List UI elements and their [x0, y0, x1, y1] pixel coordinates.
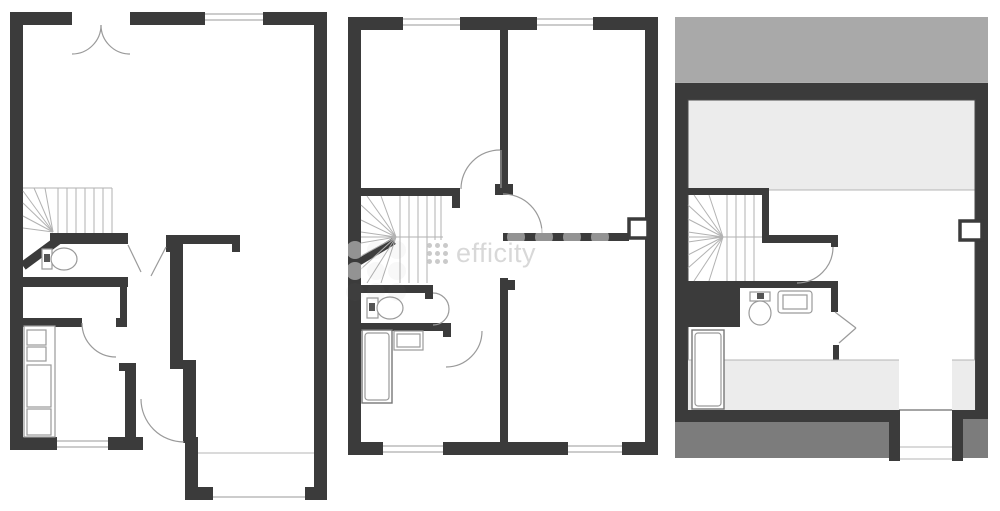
floor-plan-ground: [10, 12, 327, 500]
roof-band-bottom-left: [675, 422, 889, 458]
low-ceiling-zone-bottom-right: [952, 360, 975, 410]
top-bed: [692, 330, 724, 409]
first-side-table: [394, 331, 423, 350]
ground-staircase: [23, 188, 112, 233]
low-ceiling-zone-top: [688, 100, 975, 190]
top-sink: [778, 291, 812, 313]
floor-plans-drawing: [0, 0, 1000, 511]
first-bed: [362, 330, 392, 403]
ground-kitchen-counter: [24, 326, 55, 437]
flue-first-floor: [629, 219, 648, 238]
ground-wc-toilet: [42, 248, 77, 270]
floor-plan-top: [675, 17, 988, 461]
top-toilet: [749, 292, 771, 325]
roof-band-top: [675, 17, 988, 83]
top-staircase: [688, 195, 762, 281]
floor-plan-first: [348, 17, 658, 455]
flue-top-floor: [960, 221, 982, 240]
roof-band-bottom-right: [963, 419, 988, 458]
floor-plan-sheet: efficity: [0, 0, 1000, 511]
top-bottom-structure: [675, 410, 988, 461]
